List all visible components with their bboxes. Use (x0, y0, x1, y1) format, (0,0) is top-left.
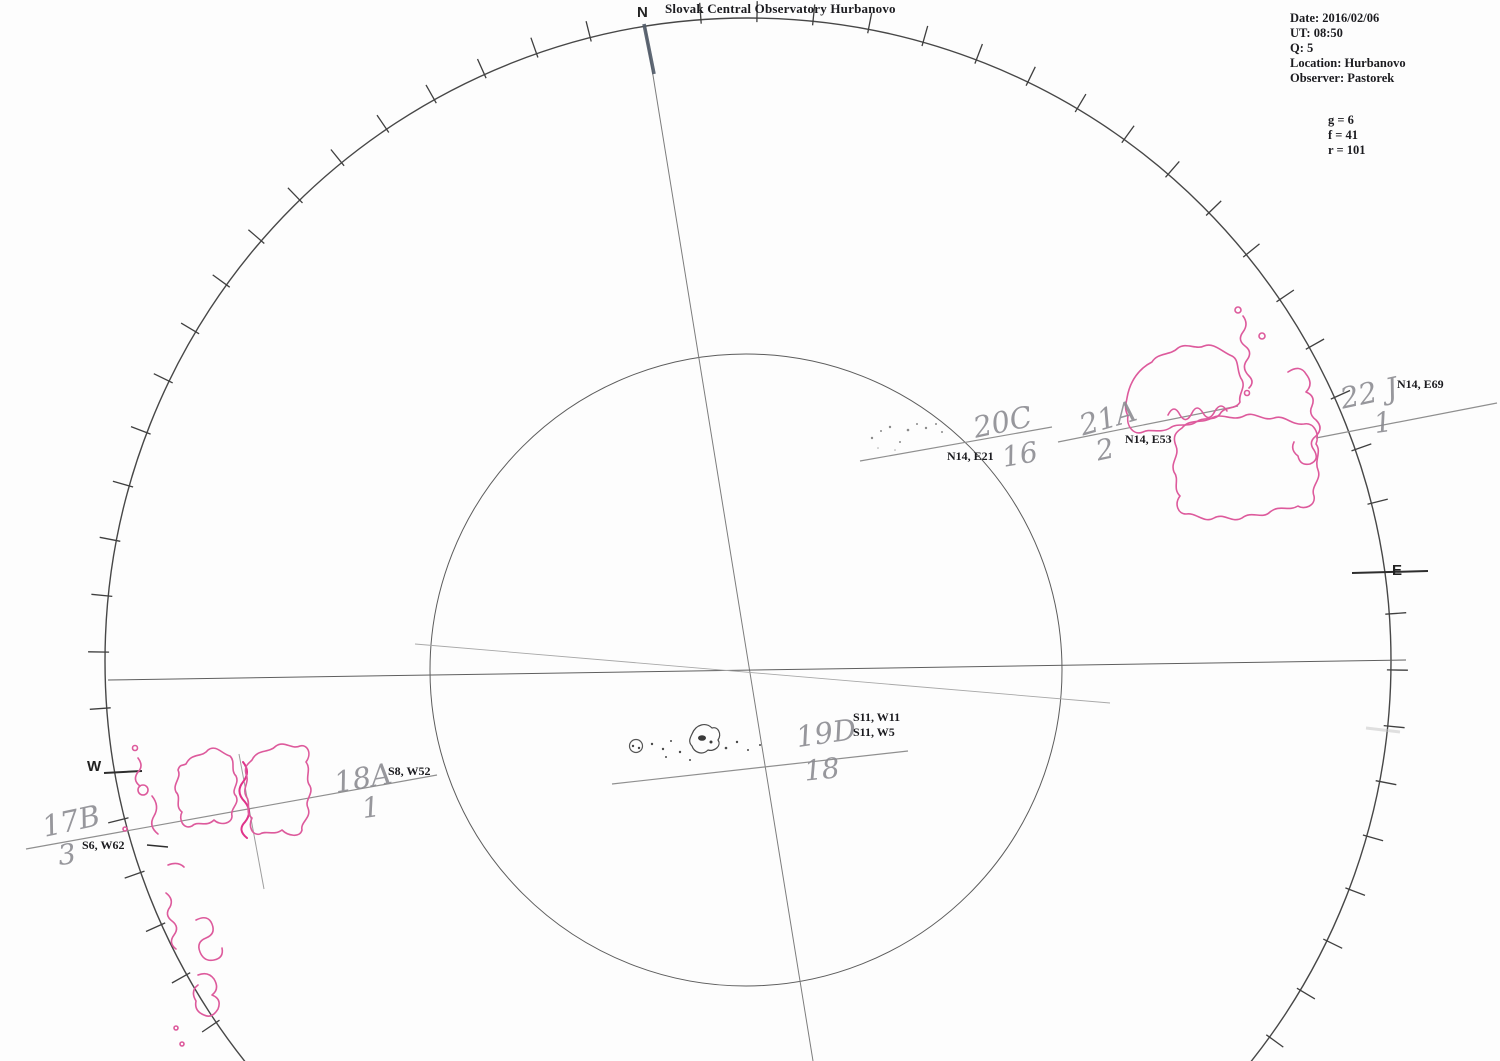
group-19d-count: 18 (802, 751, 841, 788)
limb-ticks (88, 1, 1408, 1061)
solar-disk-circle (105, 18, 1391, 1061)
plage-speck (1245, 391, 1250, 396)
sunspot-dot (638, 747, 640, 749)
limb-tick (1122, 126, 1134, 143)
limb-tick (172, 973, 190, 983)
sunspot-group-20c-spots (871, 423, 943, 451)
limb-tick (331, 150, 344, 166)
group-position-lines (26, 403, 1497, 889)
group-line-19d (612, 751, 908, 784)
east-mark (1352, 571, 1428, 573)
plage-outline (1288, 368, 1320, 464)
west-mark (104, 771, 142, 773)
info-location: Location: Hurbanovo (1290, 56, 1406, 71)
plage-speck (138, 785, 148, 795)
limb-tick (181, 323, 199, 334)
group-19d-coord: S11, W11 (853, 710, 900, 725)
limb-tick (91, 594, 112, 596)
compass-west-label: W (87, 758, 101, 775)
observation-drawing (0, 0, 1500, 1061)
group-21a-coord: N14, E53 (1125, 432, 1172, 447)
stat-g: g = 6 (1328, 113, 1365, 128)
info-ut: UT: 08:50 (1290, 26, 1406, 41)
group-17b-coord: S6, W62 (82, 838, 124, 853)
plage-region-northeast (1126, 307, 1320, 520)
group-20c-count: 16 (999, 435, 1040, 474)
plage-speck (174, 1026, 178, 1030)
limb-tick (1385, 613, 1406, 615)
limb-tick (213, 275, 230, 287)
plage-speck (180, 1042, 184, 1046)
plage-squiggle (193, 974, 219, 1016)
limb-tick (90, 708, 111, 710)
plage-speck (1235, 307, 1241, 313)
group-20c-coord: N14, E21 (947, 449, 994, 464)
north-mark (644, 24, 654, 74)
horizontal-axis-line (108, 660, 1406, 680)
stat-f: f = 41 (1328, 128, 1365, 143)
limb-tick (288, 188, 303, 203)
limb-tick (1166, 161, 1180, 177)
limb-tick (1266, 1035, 1283, 1047)
plage-outline (1173, 414, 1319, 519)
info-date: Date: 2016/02/06 (1290, 11, 1406, 26)
sunspot-umbra (698, 735, 706, 741)
stat-r: r = 101 (1328, 143, 1365, 158)
plage-squiggle (166, 893, 177, 949)
page-title: Slovak Central Observatory Hurbanovo (665, 1, 896, 17)
sunspot-dot (710, 741, 713, 744)
sunspot-dot-cluster (651, 740, 761, 761)
scan-smudge (1366, 728, 1400, 732)
stats-block: g = 6 f = 41 r = 101 (1328, 113, 1365, 158)
plage-squiggle (1168, 406, 1227, 420)
plage-squiggle (168, 863, 184, 867)
limb-tick (1243, 244, 1259, 257)
observation-info-block: Date: 2016/02/06 UT: 08:50 Q: 5 Location… (1290, 11, 1406, 86)
info-q: Q: 5 (1290, 41, 1406, 56)
plage-outline (175, 748, 237, 827)
plage-squiggle (152, 796, 158, 834)
plage-region-southwest (123, 744, 311, 1046)
limb-tick (426, 85, 436, 103)
compass-east-label: E (1392, 562, 1402, 579)
cardinal-marks (104, 24, 1428, 847)
w62-pointer-dash (147, 845, 168, 847)
limb-tick (1384, 726, 1405, 728)
plage-outline (245, 744, 311, 835)
sunspot-group-19d-spots (630, 725, 762, 761)
limb-tick (248, 230, 264, 244)
plage-squiggle (196, 918, 222, 961)
sunspot-ring (630, 740, 643, 753)
meridian-line (645, 26, 813, 1061)
info-observer: Observer: Pastorek (1290, 71, 1406, 86)
limb-tick (1277, 290, 1294, 302)
plage-speck (1259, 333, 1265, 339)
compass-north-label: N (637, 4, 648, 21)
plage-outline (1240, 316, 1252, 388)
limb-tick (202, 1020, 219, 1032)
group-18a-coord: S8, W52 (388, 764, 430, 779)
group-22j-coord: N14, E69 (1397, 377, 1444, 392)
group-19d-coord2: S11, W5 (853, 725, 895, 740)
limb-tick (377, 115, 389, 132)
limb-tick (1306, 339, 1324, 349)
plage-speck (133, 746, 138, 751)
limb-tick (1206, 201, 1221, 216)
axis-lines (108, 26, 1406, 1061)
sunspot-dot (632, 745, 634, 747)
limb-tick (1075, 94, 1086, 112)
plage-speck (123, 827, 127, 831)
limb-tick (1297, 988, 1315, 999)
